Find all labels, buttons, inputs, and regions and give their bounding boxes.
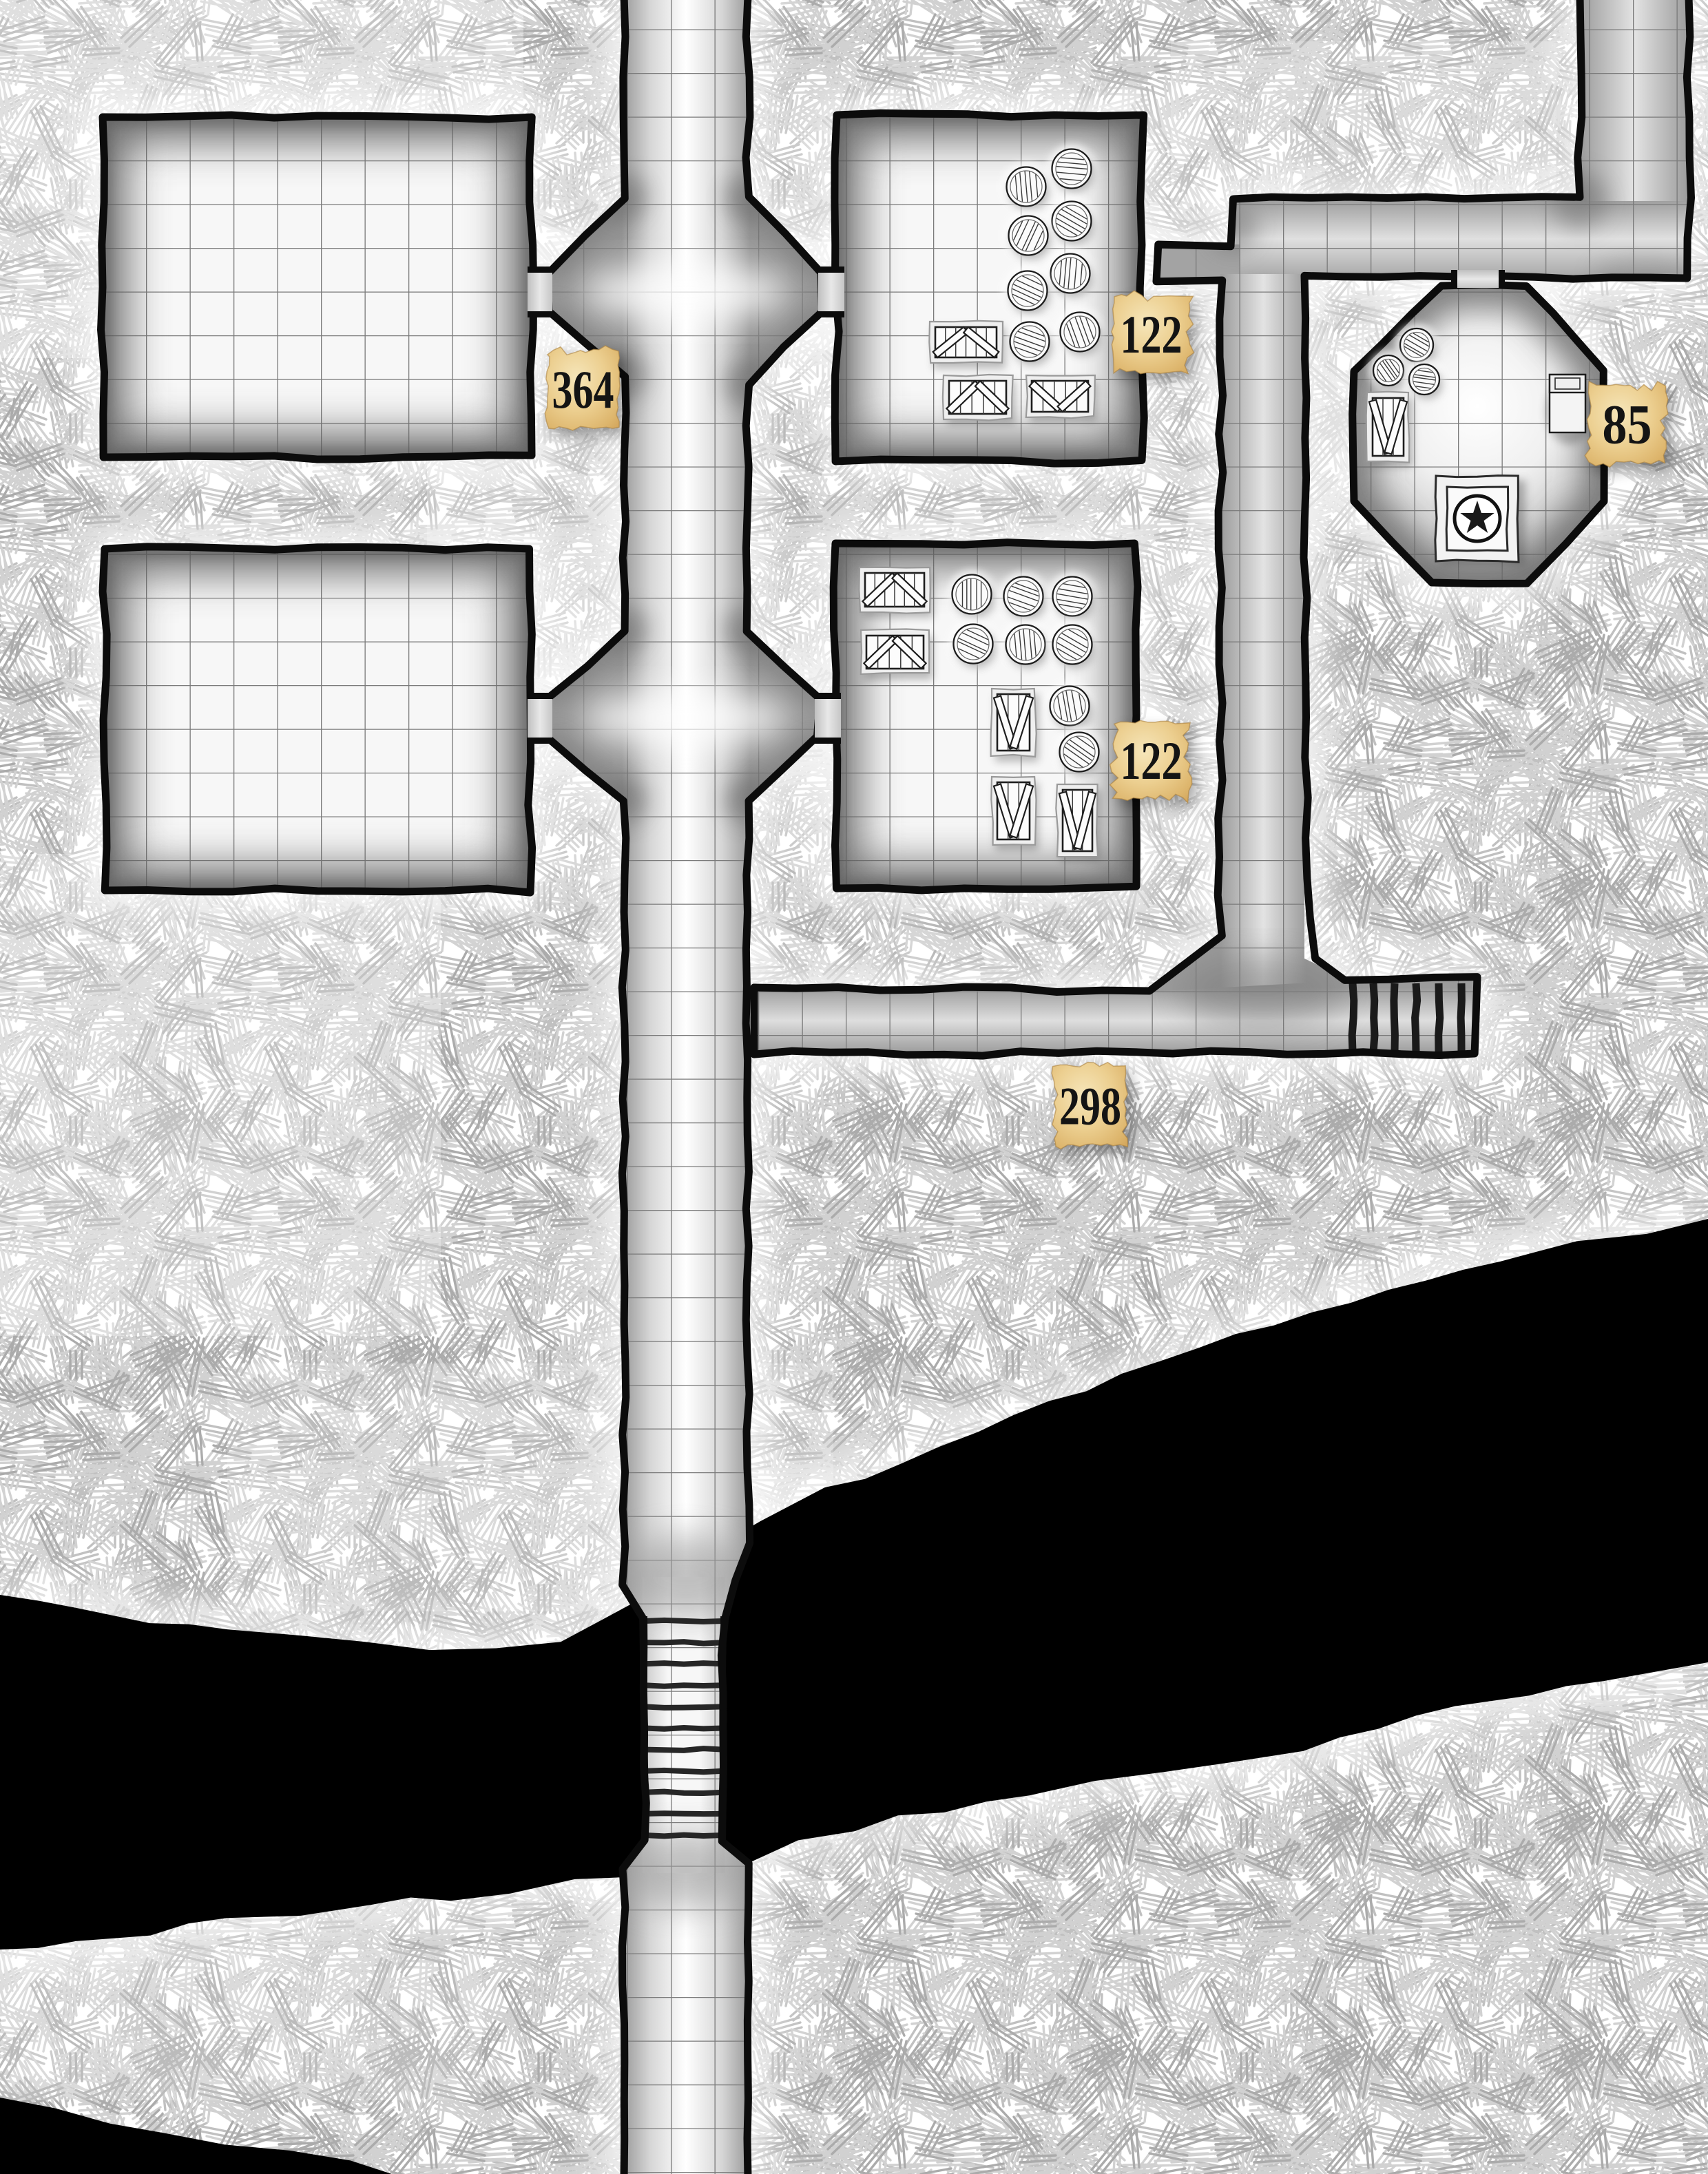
svg-text:364: 364: [552, 359, 614, 419]
svg-text:122: 122: [1121, 304, 1183, 364]
svg-text:85: 85: [1603, 393, 1652, 455]
svg-text:122: 122: [1121, 731, 1183, 791]
svg-text:298: 298: [1059, 1076, 1121, 1136]
